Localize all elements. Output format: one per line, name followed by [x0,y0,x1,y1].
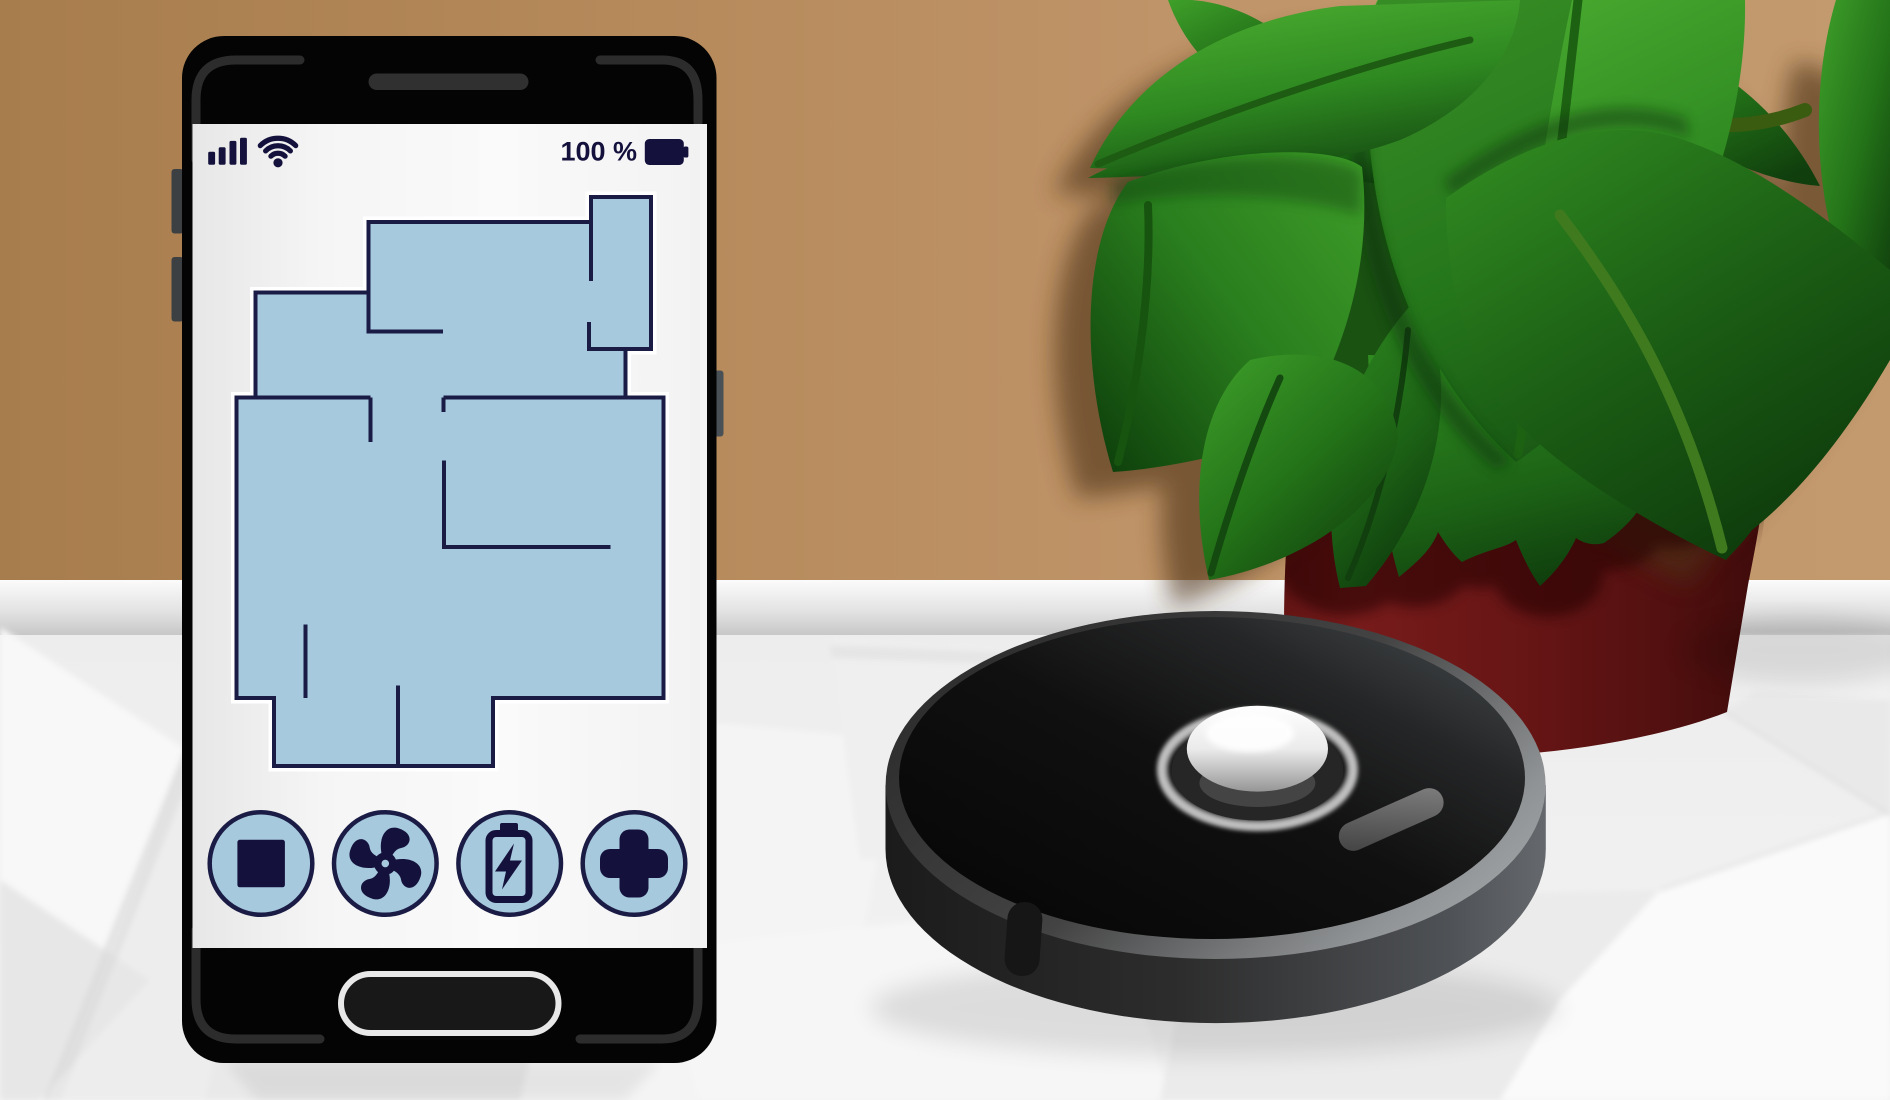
svg-text:100 %: 100 % [560,137,637,167]
